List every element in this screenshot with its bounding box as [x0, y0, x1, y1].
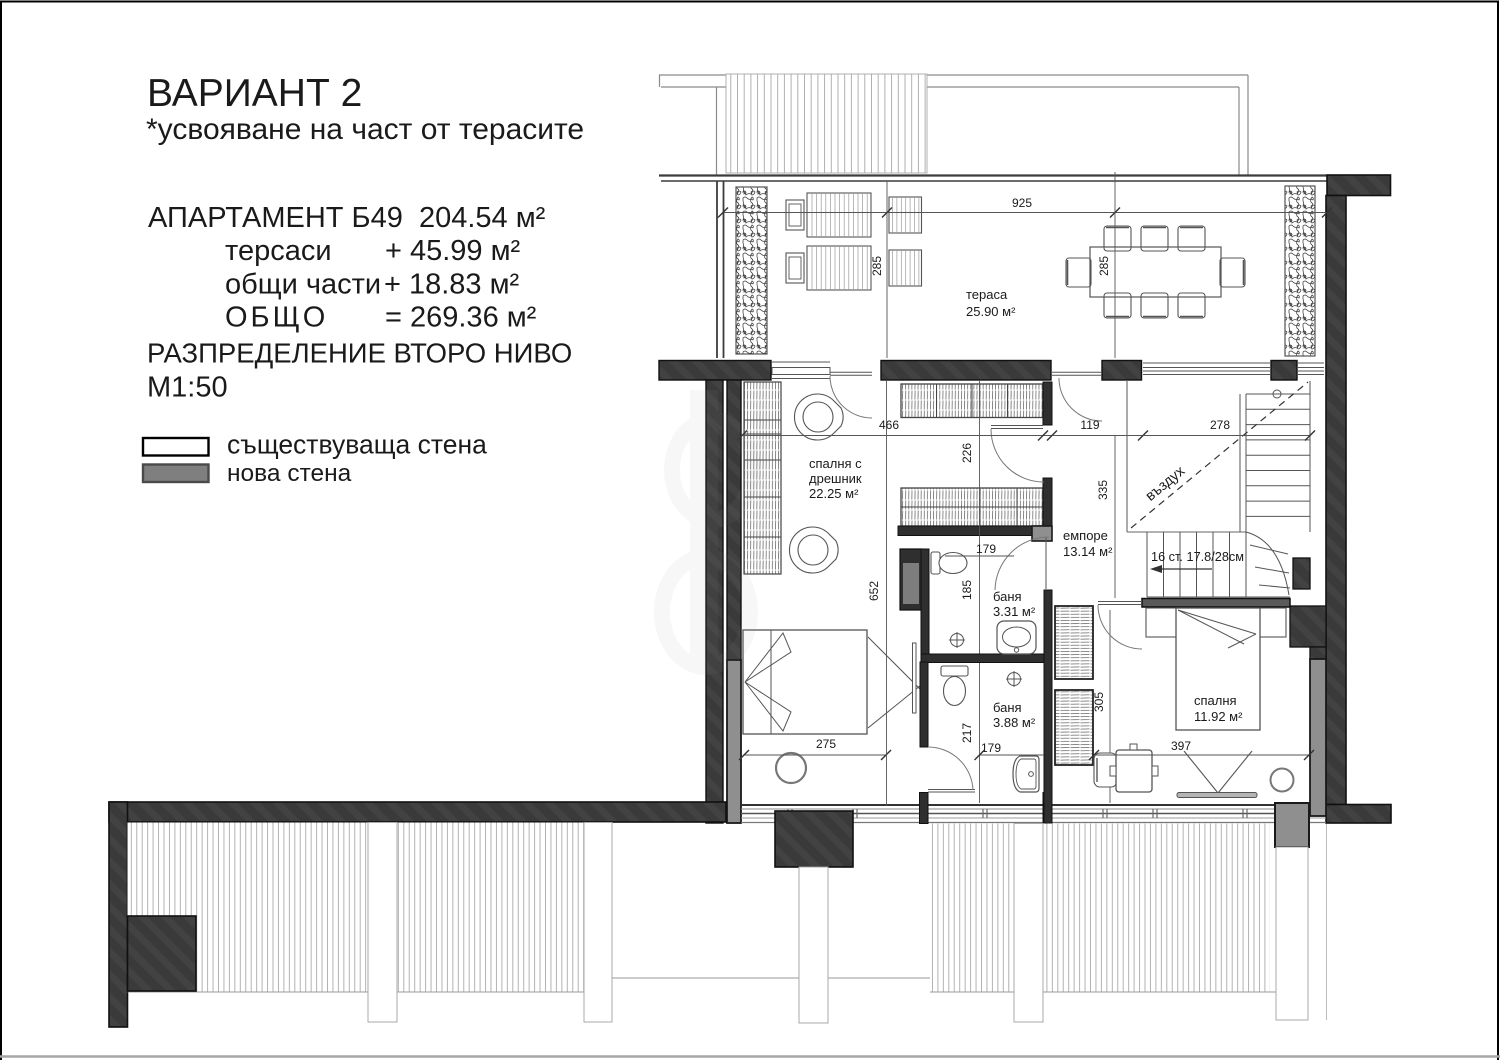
svg-text:емпоре: емпоре — [1063, 528, 1108, 543]
svg-text:баня: баня — [993, 700, 1022, 715]
svg-text:тераса: тераса — [966, 287, 1008, 302]
svg-text:278: 278 — [1210, 418, 1230, 432]
svg-text:652: 652 — [867, 581, 881, 601]
svg-text:397: 397 — [1171, 739, 1191, 753]
svg-text:3.31 м²: 3.31 м² — [993, 604, 1036, 619]
svg-text:ВАРИАНТ 2: ВАРИАНТ 2 — [147, 72, 362, 115]
svg-text:285: 285 — [870, 256, 884, 276]
svg-text:13.14 м²: 13.14 м² — [1063, 544, 1113, 559]
svg-text:305: 305 — [1092, 692, 1106, 712]
svg-text:РАЗПРЕДЕЛЕНИЕ ВТОРО НИВО: РАЗПРЕДЕЛЕНИЕ ВТОРО НИВО — [147, 338, 572, 369]
svg-text:+ 45.99 м²: + 45.99 м² — [385, 235, 521, 267]
svg-text:16 ст. 17.8/28см: 16 ст. 17.8/28см — [1151, 549, 1244, 564]
svg-text:11.92 м²: 11.92 м² — [1194, 709, 1243, 724]
svg-text:спалня: спалня — [1194, 693, 1237, 708]
svg-text:925: 925 — [1012, 196, 1032, 210]
svg-text:= 269.36 м²: = 269.36 м² — [385, 302, 537, 334]
svg-text:179: 179 — [981, 741, 1001, 755]
svg-text:3.88 м²: 3.88 м² — [993, 715, 1036, 730]
svg-text:285: 285 — [1097, 256, 1111, 276]
svg-text:275: 275 — [816, 737, 836, 751]
svg-text:226: 226 — [960, 443, 974, 463]
svg-text:АПАРТАМЕНТ Б49 204.54 м²: АПАРТАМЕНТ Б49 204.54 м² — [148, 202, 546, 234]
svg-text:нова стена: нова стена — [227, 460, 352, 487]
svg-text:119: 119 — [1080, 418, 1099, 432]
svg-text:въздух: въздух — [1143, 463, 1189, 505]
svg-text:217: 217 — [960, 723, 974, 743]
svg-text:баня: баня — [993, 589, 1022, 604]
svg-text:335: 335 — [1096, 480, 1110, 500]
svg-text:ОБЩО: ОБЩО — [225, 302, 328, 334]
svg-text:+ 18.83 м²: + 18.83 м² — [384, 269, 520, 301]
svg-text:185: 185 — [960, 580, 974, 600]
svg-text:*усвояване на част от терасите: *усвояване на част от терасите — [146, 113, 584, 146]
svg-text:М1:50: М1:50 — [147, 372, 228, 404]
svg-text:съществуваща стена: съществуваща стена — [227, 430, 487, 460]
svg-text:дрешник: дрешник — [809, 471, 862, 486]
svg-text:22.25 м²: 22.25 м² — [809, 486, 859, 501]
svg-text:спалня с: спалня с — [809, 456, 862, 471]
svg-text:терсаси: терсаси — [225, 235, 332, 267]
svg-text:25.90 м²: 25.90 м² — [966, 304, 1016, 319]
svg-text:общи части: общи части — [225, 269, 381, 301]
svg-text:179: 179 — [976, 542, 996, 556]
svg-text:466: 466 — [879, 418, 899, 432]
